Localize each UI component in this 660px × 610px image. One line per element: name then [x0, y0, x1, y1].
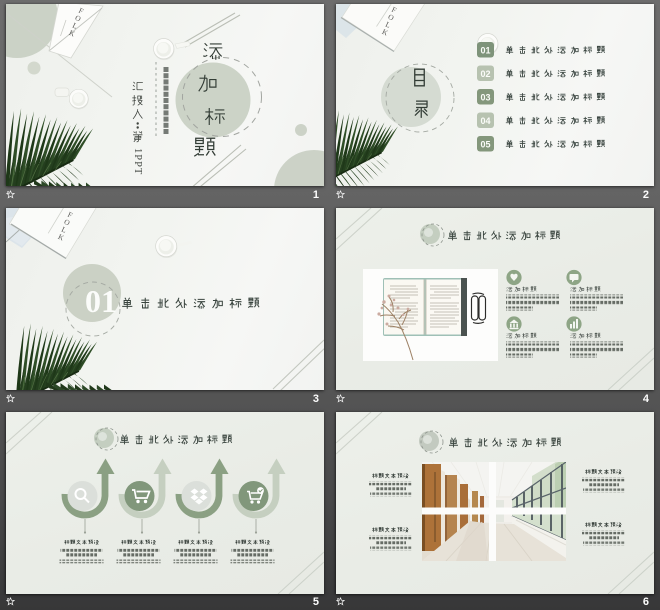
svg-text:01: 01 [85, 283, 117, 319]
svg-text:03: 03 [480, 93, 490, 103]
svg-text:01: 01 [480, 46, 490, 56]
svg-text:1PPT: 1PPT [132, 148, 143, 175]
svg-text:02: 02 [480, 69, 490, 79]
svg-text:05: 05 [480, 140, 490, 150]
svg-text:04: 04 [480, 116, 490, 126]
